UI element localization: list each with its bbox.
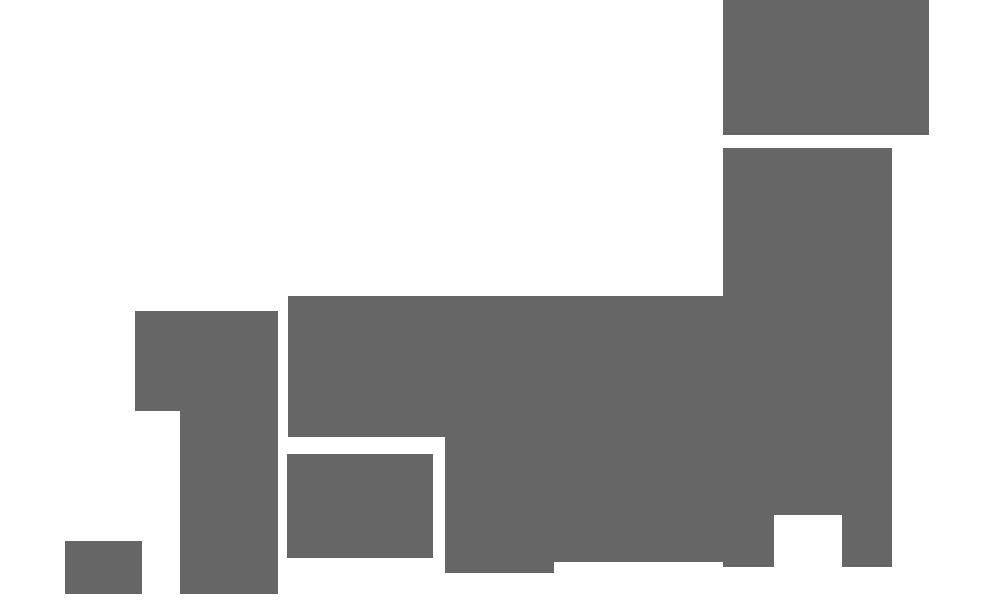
tohoku-leg-east-block [842, 515, 892, 567]
shikoku-block [287, 454, 433, 558]
kyushu-block [65, 541, 142, 594]
japan-block-map [0, 0, 1000, 600]
tohoku-main-block [723, 148, 892, 515]
central-honshu-band-block [288, 296, 723, 437]
tohoku-leg-west-block [723, 515, 774, 567]
chugoku-upper-block [135, 311, 278, 411]
kansai-block-block [445, 437, 554, 573]
hokkaido-block [723, 0, 929, 135]
chugoku-lower-block [180, 411, 278, 594]
chubu-lower-block-block [554, 437, 723, 562]
